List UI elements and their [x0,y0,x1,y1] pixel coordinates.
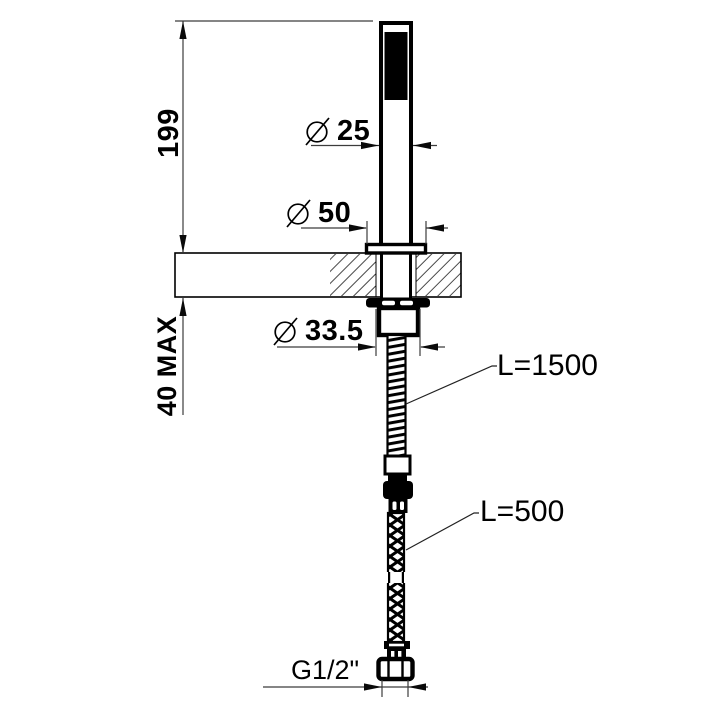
diameter-symbol [271,312,301,350]
hose-coupling [383,456,413,513]
label-lower-hose-length: L=500 [480,497,564,527]
leader-l1500 [406,366,497,404]
label-upper-hose-length: L=1500 [497,351,598,381]
dim-label-escutcheon-diameter: 50 [284,194,351,232]
connection-nut [379,659,413,679]
diameter-symbol [284,194,314,232]
drawing-linework [0,0,720,720]
dim-label-max-thickness: 40 MAX [152,304,182,428]
technical-drawing-hand-shower: 199 40 MAX 25 50 33.5 L=1500 L=500 G1/2" [0,0,720,720]
dim-value: 25 [337,115,370,148]
dim-label-height: 199 [154,93,184,173]
spray-face-dots [385,32,408,100]
label-connection-thread: G1/2" [291,656,359,684]
hose-ferrule [384,641,410,659]
deck-cross-section [175,253,461,297]
hand-shower-wand [381,23,411,299]
dim-value: 50 [318,197,351,230]
mounting-nut [379,308,418,335]
dim-label-underdeck-diameter: 33.5 [271,312,363,350]
leader-l500 [406,513,479,550]
corrugated-hose [388,335,406,456]
dim-label-handle-diameter: 25 [303,112,370,150]
braided-hose [385,513,407,642]
dim-value: 33.5 [305,315,363,348]
diameter-symbol [303,112,333,150]
escutcheon-flange [367,245,426,254]
